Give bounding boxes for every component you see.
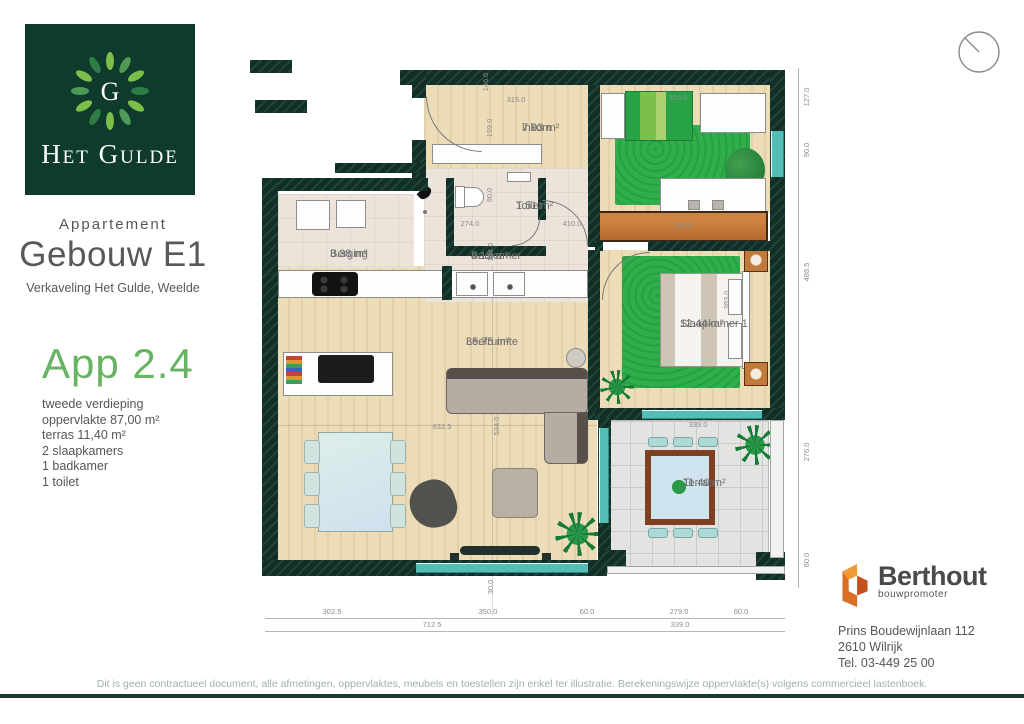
developer-address: Prins Boudewijnlaan 1122610 WilrijkTel. … [838, 623, 1018, 671]
room-area: 3.38 m² [330, 248, 367, 262]
apartment-detail-line: tweede verdieping [42, 397, 262, 413]
wall [273, 178, 428, 191]
logo-letter: G [101, 77, 120, 106]
cooktop [312, 272, 358, 296]
sofa-chaise [544, 412, 588, 464]
wall [335, 163, 426, 173]
dimension-label: 154.0 [487, 243, 495, 262]
developer-name: Berthout [878, 563, 986, 589]
dining-chair [304, 440, 320, 464]
bed2-pillow [601, 93, 625, 139]
dimension-label: 90.0 [486, 188, 494, 203]
apartment-detail-line: 1 toilet [42, 475, 262, 491]
wall [400, 70, 785, 85]
wall [648, 241, 785, 251]
dining-chair [390, 472, 406, 496]
washing-machine [296, 200, 330, 230]
dimension-label: 488.5 [803, 263, 811, 282]
address-line: Prins Boudewijnlaan 112 [838, 623, 1018, 639]
het-gulde-logo: G Het Gulde [25, 24, 195, 195]
inkom-closet [432, 144, 542, 164]
wall [442, 266, 452, 300]
brochure-page: G Het Gulde Appartement Gebouw E1 Verkav… [0, 0, 1024, 724]
dining-chair [390, 440, 406, 464]
wall [588, 85, 600, 247]
plant-slaapkamer1 [600, 370, 634, 404]
terras-chair [698, 437, 718, 447]
dining-chair [390, 504, 406, 528]
dimension-label: 302.5 [323, 608, 342, 616]
dimension-label: 146.0 [482, 73, 490, 92]
window-leefruimte [416, 563, 588, 573]
apartment-details: tweede verdiepingoppervlakte 87,00 m²ter… [42, 397, 262, 490]
berthout-logo-icon [838, 563, 872, 607]
north-compass-icon [956, 29, 1002, 80]
dimension-label: 410.0 [563, 220, 582, 228]
drain-icon [423, 210, 427, 214]
dresser-stool [712, 200, 724, 210]
dimension-label: 383.0 [723, 291, 731, 310]
terras-chair [673, 437, 693, 447]
footer-rule [0, 694, 1024, 698]
page-title: Gebouw E1 [18, 235, 208, 275]
tv-sideboard [460, 546, 540, 555]
apartment-name: App 2.4 [42, 340, 262, 388]
dimension-label: 339.0 [689, 421, 708, 429]
toilet-hand-sink [507, 172, 531, 182]
dining-chair [304, 504, 320, 528]
apartment-summary: App 2.4 tweede verdiepingoppervlakte 87,… [42, 340, 262, 490]
plant-living [555, 512, 600, 556]
dimension-label: 60.0 [803, 553, 811, 568]
wall [588, 250, 600, 420]
dimension-label: 350.0 [479, 608, 498, 616]
toilet-bowl [464, 187, 484, 207]
title-block: Appartement Gebouw E1 Verkaveling Het Gu… [18, 216, 208, 295]
terras-chair [648, 528, 668, 538]
wall [250, 60, 292, 73]
sliding-door-terras [599, 428, 609, 523]
room-area: 7.93 m² [522, 122, 559, 136]
dimension-line-right [798, 68, 799, 588]
plant-terras [735, 425, 775, 465]
window-bedroom2 [771, 131, 784, 177]
dresser-stool [688, 200, 700, 210]
window-slaapkamer1 [642, 410, 762, 419]
nightstand [744, 362, 768, 386]
sofa-horizontal [446, 368, 588, 414]
bathroom-sink [493, 272, 525, 296]
nightstand [744, 248, 768, 272]
dimension-label: 274.0 [461, 220, 480, 228]
dimension-label: 159.0 [486, 119, 494, 138]
address-line: 2610 Wilrijk [838, 639, 1018, 655]
room-area: 1.51 m² [516, 200, 553, 214]
bathroom-sink [456, 272, 488, 296]
dryer [336, 200, 366, 228]
wall [446, 178, 454, 256]
disclaimer-text: Dit is geen contractueel document, alle … [0, 678, 1024, 690]
dimension-line-bottom-1 [265, 618, 785, 619]
dimension-line-bottom-2 [265, 631, 785, 632]
room-area: 12.44 m² [680, 318, 723, 332]
wall [255, 100, 307, 113]
apartment-detail-line: 1 badkamer [42, 459, 262, 475]
dimension-label: 276.0 [803, 443, 811, 462]
dimension-label: 90.0 [803, 143, 811, 158]
dimension-label: 632.5 [433, 423, 452, 431]
cookbooks [286, 356, 302, 384]
dimension-label: 30.0 [487, 580, 495, 595]
dimension-label: 60.0 [580, 608, 595, 616]
dimension-label: 534.0 [493, 417, 501, 436]
dimension-label: 60.0 [734, 608, 749, 616]
basket [566, 348, 586, 368]
developer-block: Berthout bouwpromoter Prins Boudewijnlaa… [838, 563, 1018, 671]
floor-plan: inkom 7.93 m² Toilet 1.51 m² Berging 3.3… [250, 60, 825, 645]
dimension-label: 127.0 [803, 88, 811, 107]
subtitle: Appartement [18, 216, 208, 233]
location-line: Verkaveling Het Gulde, Weelde [18, 281, 208, 295]
island-appliance [318, 355, 374, 383]
dimension-label: 339.0 [671, 621, 690, 629]
dimension-label: 712.5 [423, 621, 442, 629]
address-line: Tel. 03-449 25 00 [838, 655, 1018, 671]
room-area: 11.40 m² [683, 477, 726, 491]
wall [412, 70, 426, 98]
dining-table [318, 432, 393, 532]
dimension-label: 315.0 [507, 96, 526, 104]
terras-railing-bottom [607, 566, 785, 574]
apartment-detail-line: oppervlakte 87,00 m² [42, 413, 262, 429]
wall [598, 550, 626, 566]
apartment-detail-line: terras 11,40 m² [42, 428, 262, 444]
dimension-label: 279.0 [670, 608, 689, 616]
dimension-label: 325.0 [669, 94, 688, 102]
terras-chair [673, 528, 693, 538]
terras-chair [648, 437, 668, 447]
terras-railing-right [770, 420, 784, 558]
bedroom2-desk [700, 93, 766, 133]
apartment-detail-line: 2 slaapkamers [42, 444, 262, 460]
wall [262, 178, 278, 576]
logo-wordmark: Het Gulde [41, 139, 179, 170]
leaf-wreath-icon: G [68, 49, 152, 133]
room-area: 35.75 m² [466, 336, 509, 350]
dining-chair [304, 472, 320, 496]
dimension-label: 325.0 [674, 222, 693, 230]
side-table [492, 468, 538, 518]
terras-chair [698, 528, 718, 538]
